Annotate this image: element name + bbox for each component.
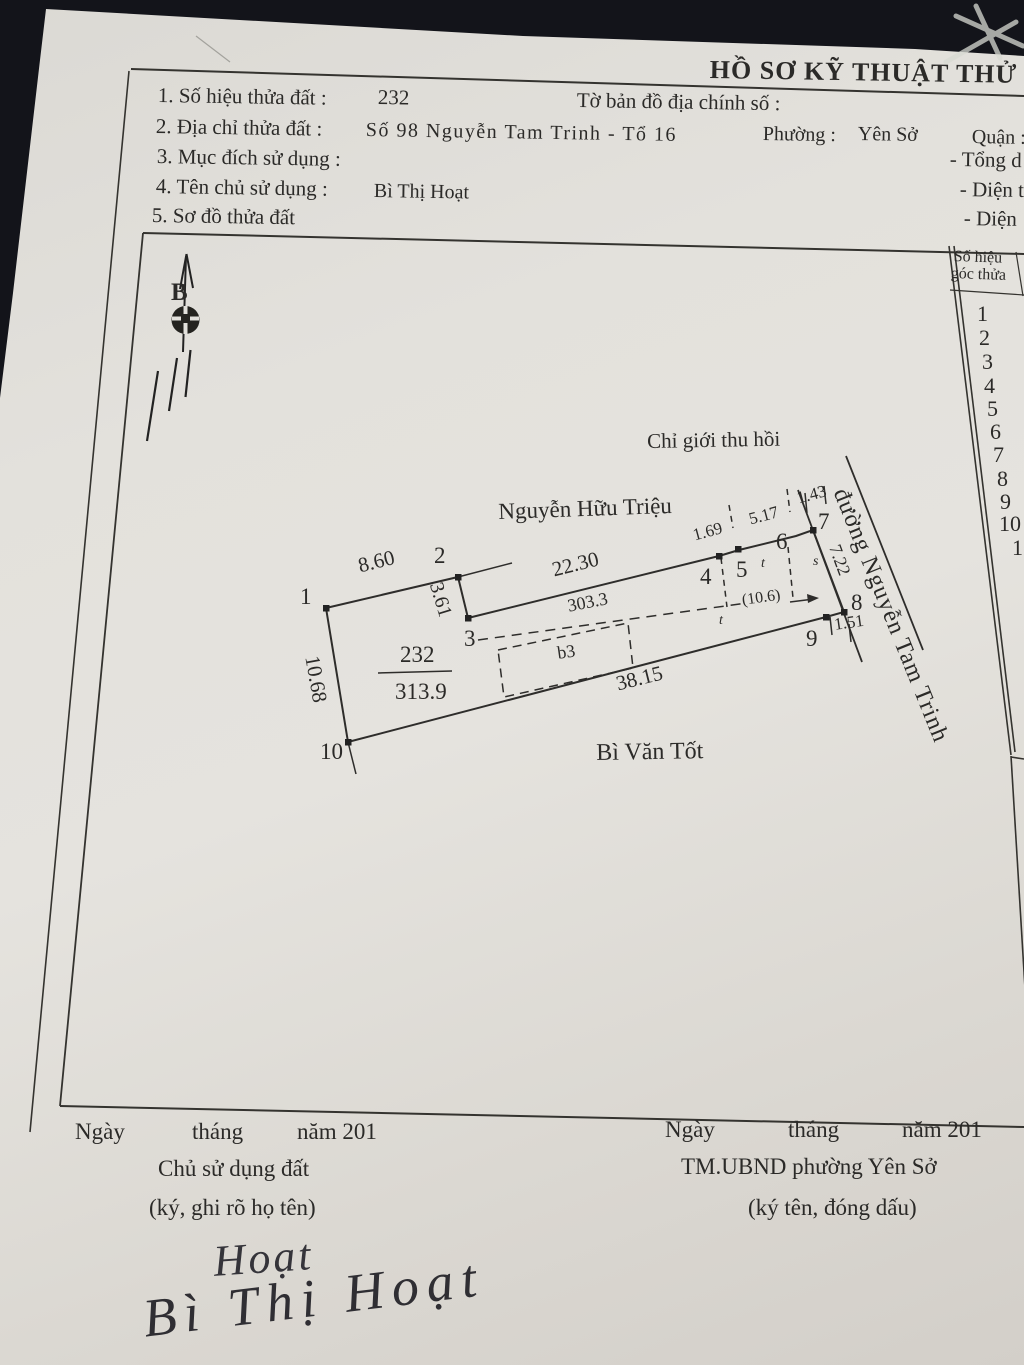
point-4-label: 4 [700,565,712,588]
corner-table-header-1: Số hiệu [953,249,1002,267]
label-t-upper: t [761,557,765,571]
page-title: HỒ SƠ KỸ THUẬT THỬ [710,57,1018,88]
light-streaks [946,6,1023,62]
point-6-label: 6 [776,530,788,553]
footer-right-day: Ngày [665,1118,715,1141]
adjacent-owner-top: Nguyễn Hữu Triệu [498,494,672,523]
field-2-label: 2. Địa chỉ thửa đất : [156,116,323,140]
field-5-label: 5. Sơ đồ thửa đất [152,205,296,228]
footer-left-note: (ký, ghi rõ họ tên) [149,1196,316,1219]
footer-right-note: (ký tên, đóng dấu) [748,1196,917,1219]
corner-row-number: 2 [979,327,990,349]
corner-row-number: 4 [984,375,995,397]
footer-left-day: Ngày [75,1120,125,1143]
field-2-extra2: Yên Sở [858,124,918,145]
corner-row-number: 9 [1000,491,1011,513]
point-3-label: 3 [464,627,476,650]
footer-left-role: Chủ sử dụng đất [158,1157,309,1180]
field-3-right: - Tổng d [950,149,1022,171]
corner-row-number: 7 [993,444,1004,466]
diagram-frame [60,233,1024,1127]
label-s: s [813,555,818,569]
corner-row-number: 1 [1012,537,1023,559]
point-10-label: 10 [320,740,343,763]
field-4-label: 4. Tên chủ sử dụng : [156,176,328,200]
label-t-lower: t [719,614,723,628]
corner-row-number: 3 [982,351,993,373]
field-1-value: 232 [378,87,410,108]
corner-row-number: 5 [987,398,998,420]
corner-row-number: 6 [990,421,1001,443]
field-5-right: - Diện [964,208,1017,230]
parcel-number: 232 [400,643,435,666]
field-1-extra: Tờ bản đồ địa chính số : [577,90,781,114]
point-9-label: 9 [806,627,818,650]
point-5-label: 5 [736,558,748,581]
field-1-label: 1. Số hiệu thửa đất : [158,85,327,109]
footer-right-month: tháng [788,1118,839,1141]
setback-arrow [790,594,819,603]
point-2-label: 2 [434,544,446,567]
paper-crease [196,36,230,62]
footer-right-year: năm 201 [902,1118,982,1141]
field-2-right: Quận : [972,127,1024,148]
field-2-extra: Phường : [763,124,836,145]
footer-left-month: tháng [192,1120,243,1143]
field-2-value: Số 98 Nguyễn Tam Trinh - Tổ 16 [366,120,678,145]
label-b3: b3 [556,641,576,661]
corner-row-number: 10 [999,513,1021,535]
north-label: B [171,280,188,305]
footer-right-role: TM.UBND phường Yên Sở [681,1155,937,1178]
adjacent-owner-bottom: Bì Văn Tốt [596,739,704,765]
point-7-label: 7 [818,510,830,533]
recovery-boundary-label: Chỉ giới thu hồi [647,429,780,452]
footer-left-year: năm 201 [297,1120,377,1143]
field-4-value: Bì Thị Hoạt [374,181,469,202]
photo-of-cadastral-document: HỒ SƠ KỸ THUẬT THỬ 1. Số hiệu thửa đất :… [0,0,1024,1365]
parcel-area: 313.9 [395,680,447,703]
corner-row-number: 1 [977,303,988,325]
corner-row-number: 8 [997,468,1008,490]
point-1-label: 1 [300,585,312,608]
field-4-right: - Diện t [960,179,1024,201]
field-3-label: 3. Mục đích sử dụng : [157,146,341,170]
dim-1-51: 1.51 [833,612,865,633]
corner-table-header-2: góc thửa [950,266,1006,284]
